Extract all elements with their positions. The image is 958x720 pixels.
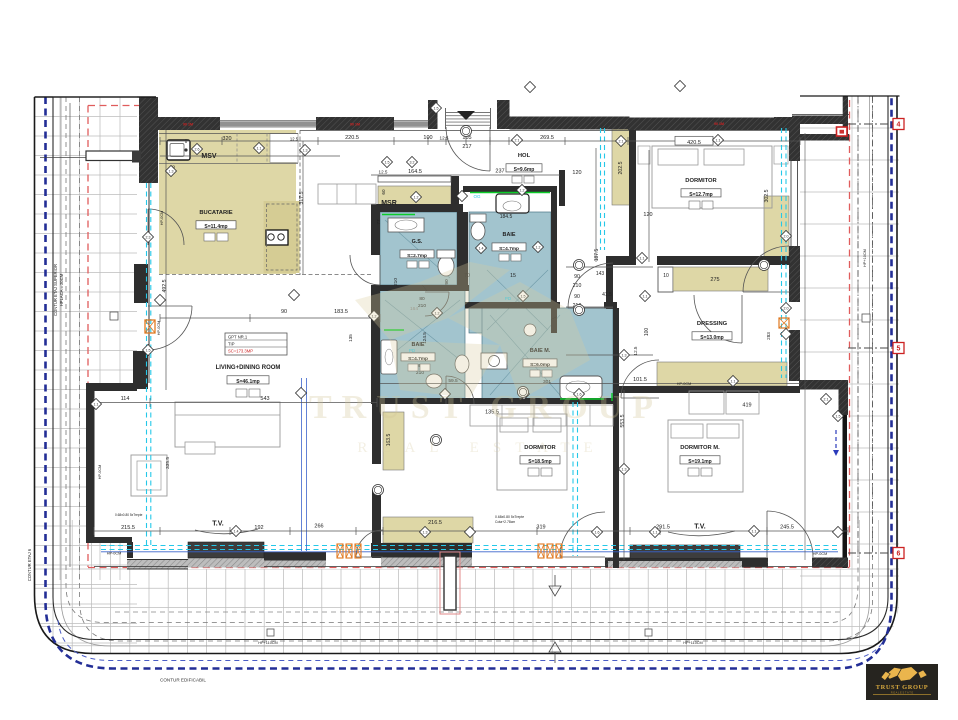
svg-text:492.5: 492.5 <box>162 279 168 292</box>
svg-text:TRUST GROUP: TRUST GROUP <box>876 684 928 691</box>
svg-text:HP+110CM: HP+110CM <box>683 641 702 645</box>
svg-text:90: 90 <box>281 309 287 315</box>
svg-text:2.3: 2.3 <box>146 236 151 240</box>
svg-text:164.5: 164.5 <box>408 169 422 175</box>
svg-text:2.0: 2.0 <box>784 307 789 311</box>
svg-text:183.5: 183.5 <box>334 309 348 315</box>
svg-text:135: 135 <box>348 334 353 342</box>
svg-text:R E A L E S T A T E: R E A L E S T A T E <box>891 691 914 695</box>
svg-text:100: 100 <box>423 135 432 141</box>
svg-text:1.1: 1.1 <box>653 531 658 535</box>
svg-text:HP+10CM: HP+10CM <box>863 249 867 267</box>
svg-text:S=11.4mp: S=11.4mp <box>204 224 227 230</box>
svg-text:12.5: 12.5 <box>379 170 388 175</box>
svg-text:5: 5 <box>897 346 901 353</box>
svg-text:REAL ESTATE: REAL ESTATE <box>357 440 606 456</box>
svg-text:CONTUR ETAJ 6: CONTUR ETAJ 6 <box>27 548 32 581</box>
svg-text:319: 319 <box>536 525 545 531</box>
svg-text:184.5: 184.5 <box>500 214 513 220</box>
svg-text:1.1: 1.1 <box>640 257 645 261</box>
svg-text:DRESSING: DRESSING <box>697 321 728 327</box>
svg-text:S=18.5mp: S=18.5mp <box>528 459 552 465</box>
svg-text:2.1: 2.1 <box>515 139 520 143</box>
svg-text:245.5: 245.5 <box>780 525 794 531</box>
svg-text:1.2: 1.2 <box>414 196 419 200</box>
svg-text:CONTUR ETAJ SUPERIOR: CONTUR ETAJ SUPERIOR <box>53 264 58 316</box>
svg-text:143: 143 <box>596 271 605 277</box>
svg-text:90 1M: 90 1M <box>714 122 724 126</box>
svg-text:2.1: 2.1 <box>619 140 624 144</box>
svg-text:T.V.: T.V. <box>212 521 223 528</box>
svg-text:G.S.: G.S. <box>412 239 423 245</box>
svg-text:HP-0CM: HP-0CM <box>107 552 122 556</box>
svg-text:1.1: 1.1 <box>752 530 757 534</box>
svg-text:S=46.1mp: S=46.1mp <box>236 379 260 385</box>
svg-text:77: 77 <box>376 219 381 225</box>
svg-text:1.2: 1.2 <box>520 189 525 193</box>
svg-text:15: 15 <box>510 273 516 279</box>
svg-text:90: 90 <box>574 294 580 300</box>
svg-text:TRUST GROUP: TRUST GROUP <box>309 389 663 426</box>
svg-text:1.6: 1.6 <box>595 531 600 535</box>
svg-text:302.5: 302.5 <box>764 189 770 202</box>
svg-text:317.5: 317.5 <box>299 191 305 204</box>
svg-text:1.5: 1.5 <box>385 161 390 165</box>
svg-text:0.68x0.80 5xTrepte: 0.68x0.80 5xTrepte <box>115 513 143 517</box>
svg-text:90 1M: 90 1M <box>350 123 360 127</box>
svg-text:2.6: 2.6 <box>195 148 200 152</box>
svg-text:GPT NR.1: GPT NR.1 <box>228 335 248 340</box>
svg-text:90: 90 <box>574 274 580 280</box>
svg-text:1.3: 1.3 <box>622 354 627 358</box>
svg-text:335.5: 335.5 <box>165 457 171 469</box>
svg-text:1.1: 1.1 <box>731 380 736 384</box>
svg-text:114: 114 <box>121 396 130 402</box>
svg-text:10: 10 <box>663 273 669 279</box>
svg-text:420.5: 420.5 <box>687 140 701 146</box>
svg-text:210: 210 <box>573 283 582 289</box>
svg-text:HP-0CM: HP-0CM <box>160 211 164 226</box>
svg-text:2.1: 2.1 <box>824 398 829 402</box>
svg-text:S=12.7mp: S=12.7mp <box>689 192 713 198</box>
svg-text:60: 60 <box>381 189 386 195</box>
svg-text:S=19.1mp: S=19.1mp <box>688 459 712 465</box>
svg-text:0.68x0.80 5xTrepte: 0.68x0.80 5xTrepte <box>495 515 524 519</box>
svg-text:1.5: 1.5 <box>836 415 841 419</box>
svg-text:1.3: 1.3 <box>169 170 174 174</box>
svg-text:SC=173.3MP: SC=173.3MP <box>228 349 253 354</box>
svg-text:S=9.6mp: S=9.6mp <box>514 167 535 173</box>
svg-text:12.5: 12.5 <box>633 346 638 355</box>
svg-text:1.1: 1.1 <box>94 403 99 407</box>
svg-text:543: 543 <box>260 396 269 402</box>
svg-text:1.5: 1.5 <box>146 349 151 353</box>
svg-text:HP-0CM: HP-0CM <box>813 552 828 556</box>
svg-text:S=2.7mp: S=2.7mp <box>407 253 427 259</box>
svg-text:192: 192 <box>254 525 263 531</box>
svg-text:202.5: 202.5 <box>618 161 624 174</box>
svg-text:HOL: HOL <box>518 153 531 159</box>
svg-text:3.2: 3.2 <box>410 161 415 165</box>
svg-text:HPLACA = 20CM: HPLACA = 20CM <box>59 273 64 306</box>
svg-text:120: 120 <box>572 170 581 176</box>
svg-text:4: 4 <box>897 122 901 129</box>
svg-text:1.1: 1.1 <box>643 295 648 299</box>
svg-text:2.0: 2.0 <box>784 235 789 239</box>
svg-text:210: 210 <box>393 278 399 286</box>
svg-text:1.3: 1.3 <box>622 468 627 472</box>
svg-text:Cota+2.78cm: Cota+2.78cm <box>495 520 515 524</box>
svg-text:HP-0CM: HP-0CM <box>157 321 161 336</box>
svg-text:1.2: 1.2 <box>536 246 541 250</box>
svg-text:T.V.: T.V. <box>694 524 705 531</box>
svg-text:187.5: 187.5 <box>594 249 600 262</box>
svg-text:12.5: 12.5 <box>440 136 449 141</box>
svg-text:1.4: 1.4 <box>234 530 239 534</box>
svg-text:269.5: 269.5 <box>540 135 554 141</box>
svg-text:1.3: 1.3 <box>303 149 308 153</box>
svg-text:HP-0CM: HP-0CM <box>98 465 102 480</box>
svg-text:12.5: 12.5 <box>290 137 299 142</box>
svg-text:41.5: 41.5 <box>602 292 612 298</box>
svg-text:419: 419 <box>742 403 751 409</box>
svg-text:217: 217 <box>462 144 471 150</box>
svg-text:OG: OG <box>473 194 481 199</box>
svg-text:120: 120 <box>643 212 652 218</box>
svg-text:1.4: 1.4 <box>479 247 484 251</box>
svg-text:DORMITOR: DORMITOR <box>685 178 717 184</box>
svg-text:100: 100 <box>644 328 650 337</box>
svg-text:1.5: 1.5 <box>434 107 439 111</box>
svg-text:215.5: 215.5 <box>121 525 135 531</box>
svg-text:101.5: 101.5 <box>633 377 647 383</box>
svg-text:6: 6 <box>897 551 901 558</box>
svg-text:S=13.0mp: S=13.0mp <box>700 335 724 341</box>
svg-text:283: 283 <box>766 332 771 340</box>
svg-text:S=4.7mp: S=4.7mp <box>499 246 519 252</box>
svg-text:MSV: MSV <box>201 153 217 160</box>
svg-text:BAIE: BAIE <box>503 232 516 238</box>
svg-text:LIVING+DINING ROOM: LIVING+DINING ROOM <box>216 365 281 371</box>
svg-text:TIP: TIP <box>228 342 235 347</box>
svg-text:MSR: MSR <box>381 200 397 207</box>
svg-text:1.3: 1.3 <box>423 531 428 535</box>
svg-text:HP-0CM: HP-0CM <box>677 382 692 386</box>
svg-text:216.5: 216.5 <box>428 520 442 526</box>
svg-text:220.5: 220.5 <box>345 135 359 141</box>
svg-text:1.1: 1.1 <box>716 139 721 143</box>
svg-text:237: 237 <box>495 169 504 175</box>
svg-text:320: 320 <box>222 136 231 142</box>
svg-text:266: 266 <box>314 524 323 530</box>
svg-text:275: 275 <box>710 277 719 283</box>
svg-text:HP+110CM: HP+110CM <box>258 641 277 645</box>
svg-text:1.1: 1.1 <box>257 147 262 151</box>
svg-text:90 1M: 90 1M <box>183 123 193 127</box>
svg-text:DORMITOR M.: DORMITOR M. <box>680 445 720 451</box>
svg-text:BUCATARIE: BUCATARIE <box>199 210 232 216</box>
svg-text:CONTUR EDIFICABIL: CONTUR EDIFICABIL <box>160 678 206 683</box>
